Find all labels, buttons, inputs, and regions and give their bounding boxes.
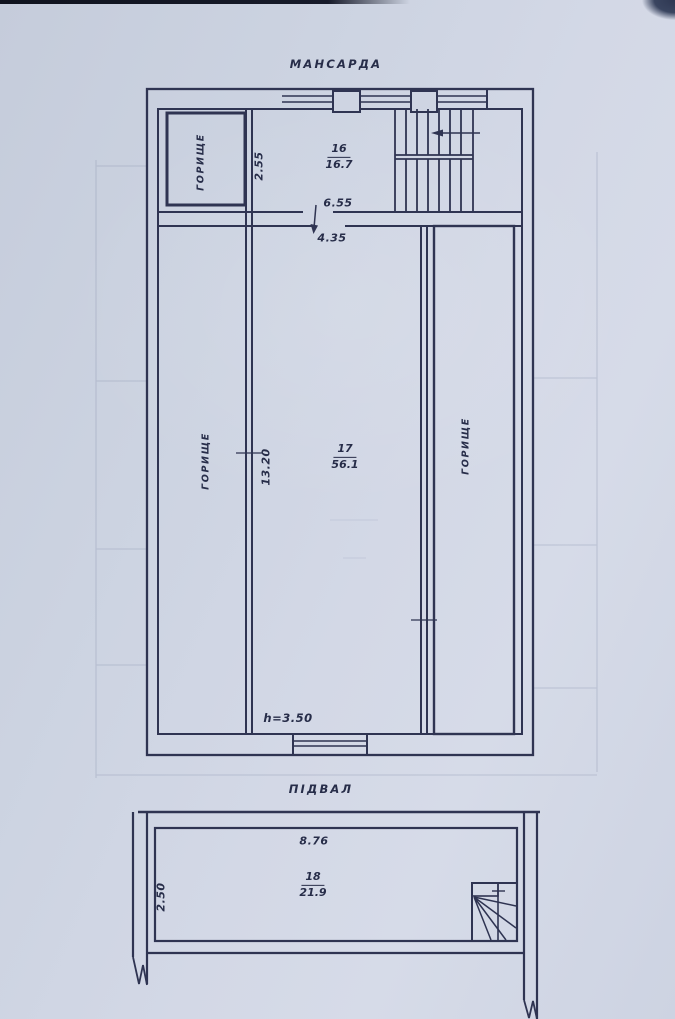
stair-direction-arrowhead [431, 130, 443, 137]
attic-label-top-left: ГОРИЩЕ [196, 133, 207, 191]
basement-stair [472, 883, 517, 941]
basement-walls [133, 812, 540, 1019]
dim-basement-depth: 2.50 [155, 882, 168, 911]
mansard-top-windows [282, 96, 487, 102]
room-16-tag: 16 16.7 [325, 143, 352, 171]
dim-room16-width: 2.55 [253, 151, 266, 180]
wall-break-right [524, 1000, 537, 1019]
attic-label-right: ГОРИЩЕ [461, 417, 472, 475]
room-17-tag: 17 56.1 [331, 443, 358, 471]
staircase [395, 109, 480, 212]
attic-label-left: ГОРИЩЕ [201, 432, 212, 490]
room-17-area: 56.1 [331, 459, 358, 472]
room-18-area: 21.9 [299, 887, 326, 900]
wall-break-left [133, 957, 147, 985]
dim-opening-bottom: 4.35 [317, 232, 346, 245]
mansard-plan-title: МАНСАРДА [290, 57, 382, 71]
dim-opening-top: 6.55 [323, 197, 352, 210]
room-18-number: 18 [301, 871, 324, 886]
room-16-number: 16 [327, 143, 350, 158]
basement-plan-title: ПІДВАЛ [289, 782, 354, 796]
room-16-area: 16.7 [325, 159, 352, 172]
dim-basement-width: 8.76 [299, 835, 328, 848]
scanned-floorplan-page: МАНСАРДА ГОРИЩЕ 2.55 16 16.7 6.55 4.35 Г… [0, 0, 675, 1019]
room-18-tag: 18 21.9 [299, 871, 326, 899]
room-17-number: 17 [333, 443, 356, 458]
bottom-window [293, 735, 367, 755]
opening-dimension-leader [311, 205, 319, 234]
ceiling-height-note: h=3.50 [263, 711, 312, 725]
dim-room17-length: 13.20 [260, 448, 273, 485]
